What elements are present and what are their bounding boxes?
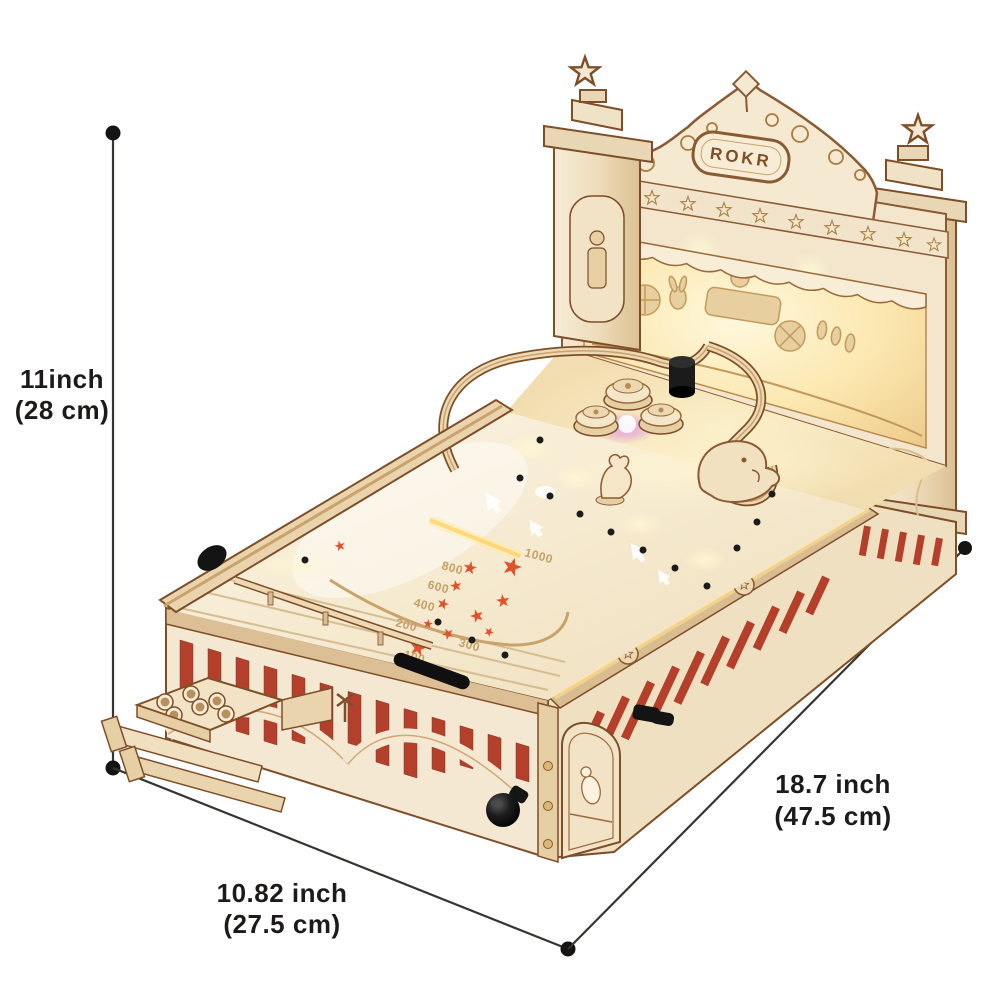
height-label-inch: 11inch — [20, 364, 104, 394]
height-dimension-line — [106, 126, 121, 776]
product-dimension-image: ROKR — [0, 0, 1000, 1000]
dimension-endpoint-dot — [106, 126, 121, 141]
depth-label-inch: 18.7 inch — [775, 769, 891, 799]
pinball-machine-illustration: ROKR — [0, 0, 1000, 1000]
left-tower — [544, 57, 652, 350]
arch-door — [562, 723, 620, 858]
depth-label-cm: (47.5 cm) — [774, 801, 891, 831]
rail-end-cap — [101, 716, 126, 751]
soldier-figure — [590, 231, 604, 245]
height-label-cm: (28 cm) — [15, 395, 110, 425]
dimension-endpoint-dot — [958, 541, 972, 555]
width-label-cm: (27.5 cm) — [223, 909, 340, 939]
width-label-inch: 10.82 inch — [217, 878, 348, 908]
corner-trim — [538, 703, 558, 862]
black-cylinder-mechanism — [669, 356, 695, 398]
rail-end-cap — [119, 746, 144, 781]
tower-star-icon — [904, 115, 933, 142]
tower-star-icon — [571, 57, 600, 84]
pinball-machine: ROKR — [101, 57, 966, 862]
